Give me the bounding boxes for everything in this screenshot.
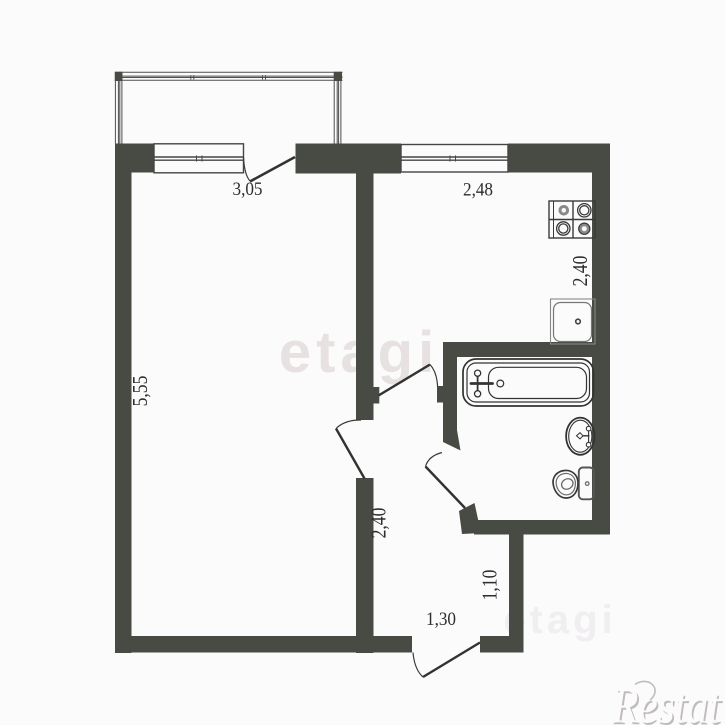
svg-text:3,05: 3,05 — [232, 178, 262, 199]
svg-text:2,40: 2,40 — [368, 508, 391, 539]
svg-text:2,40: 2,40 — [570, 256, 593, 287]
svg-text:2,48: 2,48 — [463, 179, 493, 200]
svg-text:1,30: 1,30 — [426, 608, 456, 629]
svg-text:Restate: Restate — [611, 678, 725, 725]
svg-text:1,10: 1,10 — [479, 570, 502, 601]
svg-text:5,55: 5,55 — [130, 376, 153, 407]
